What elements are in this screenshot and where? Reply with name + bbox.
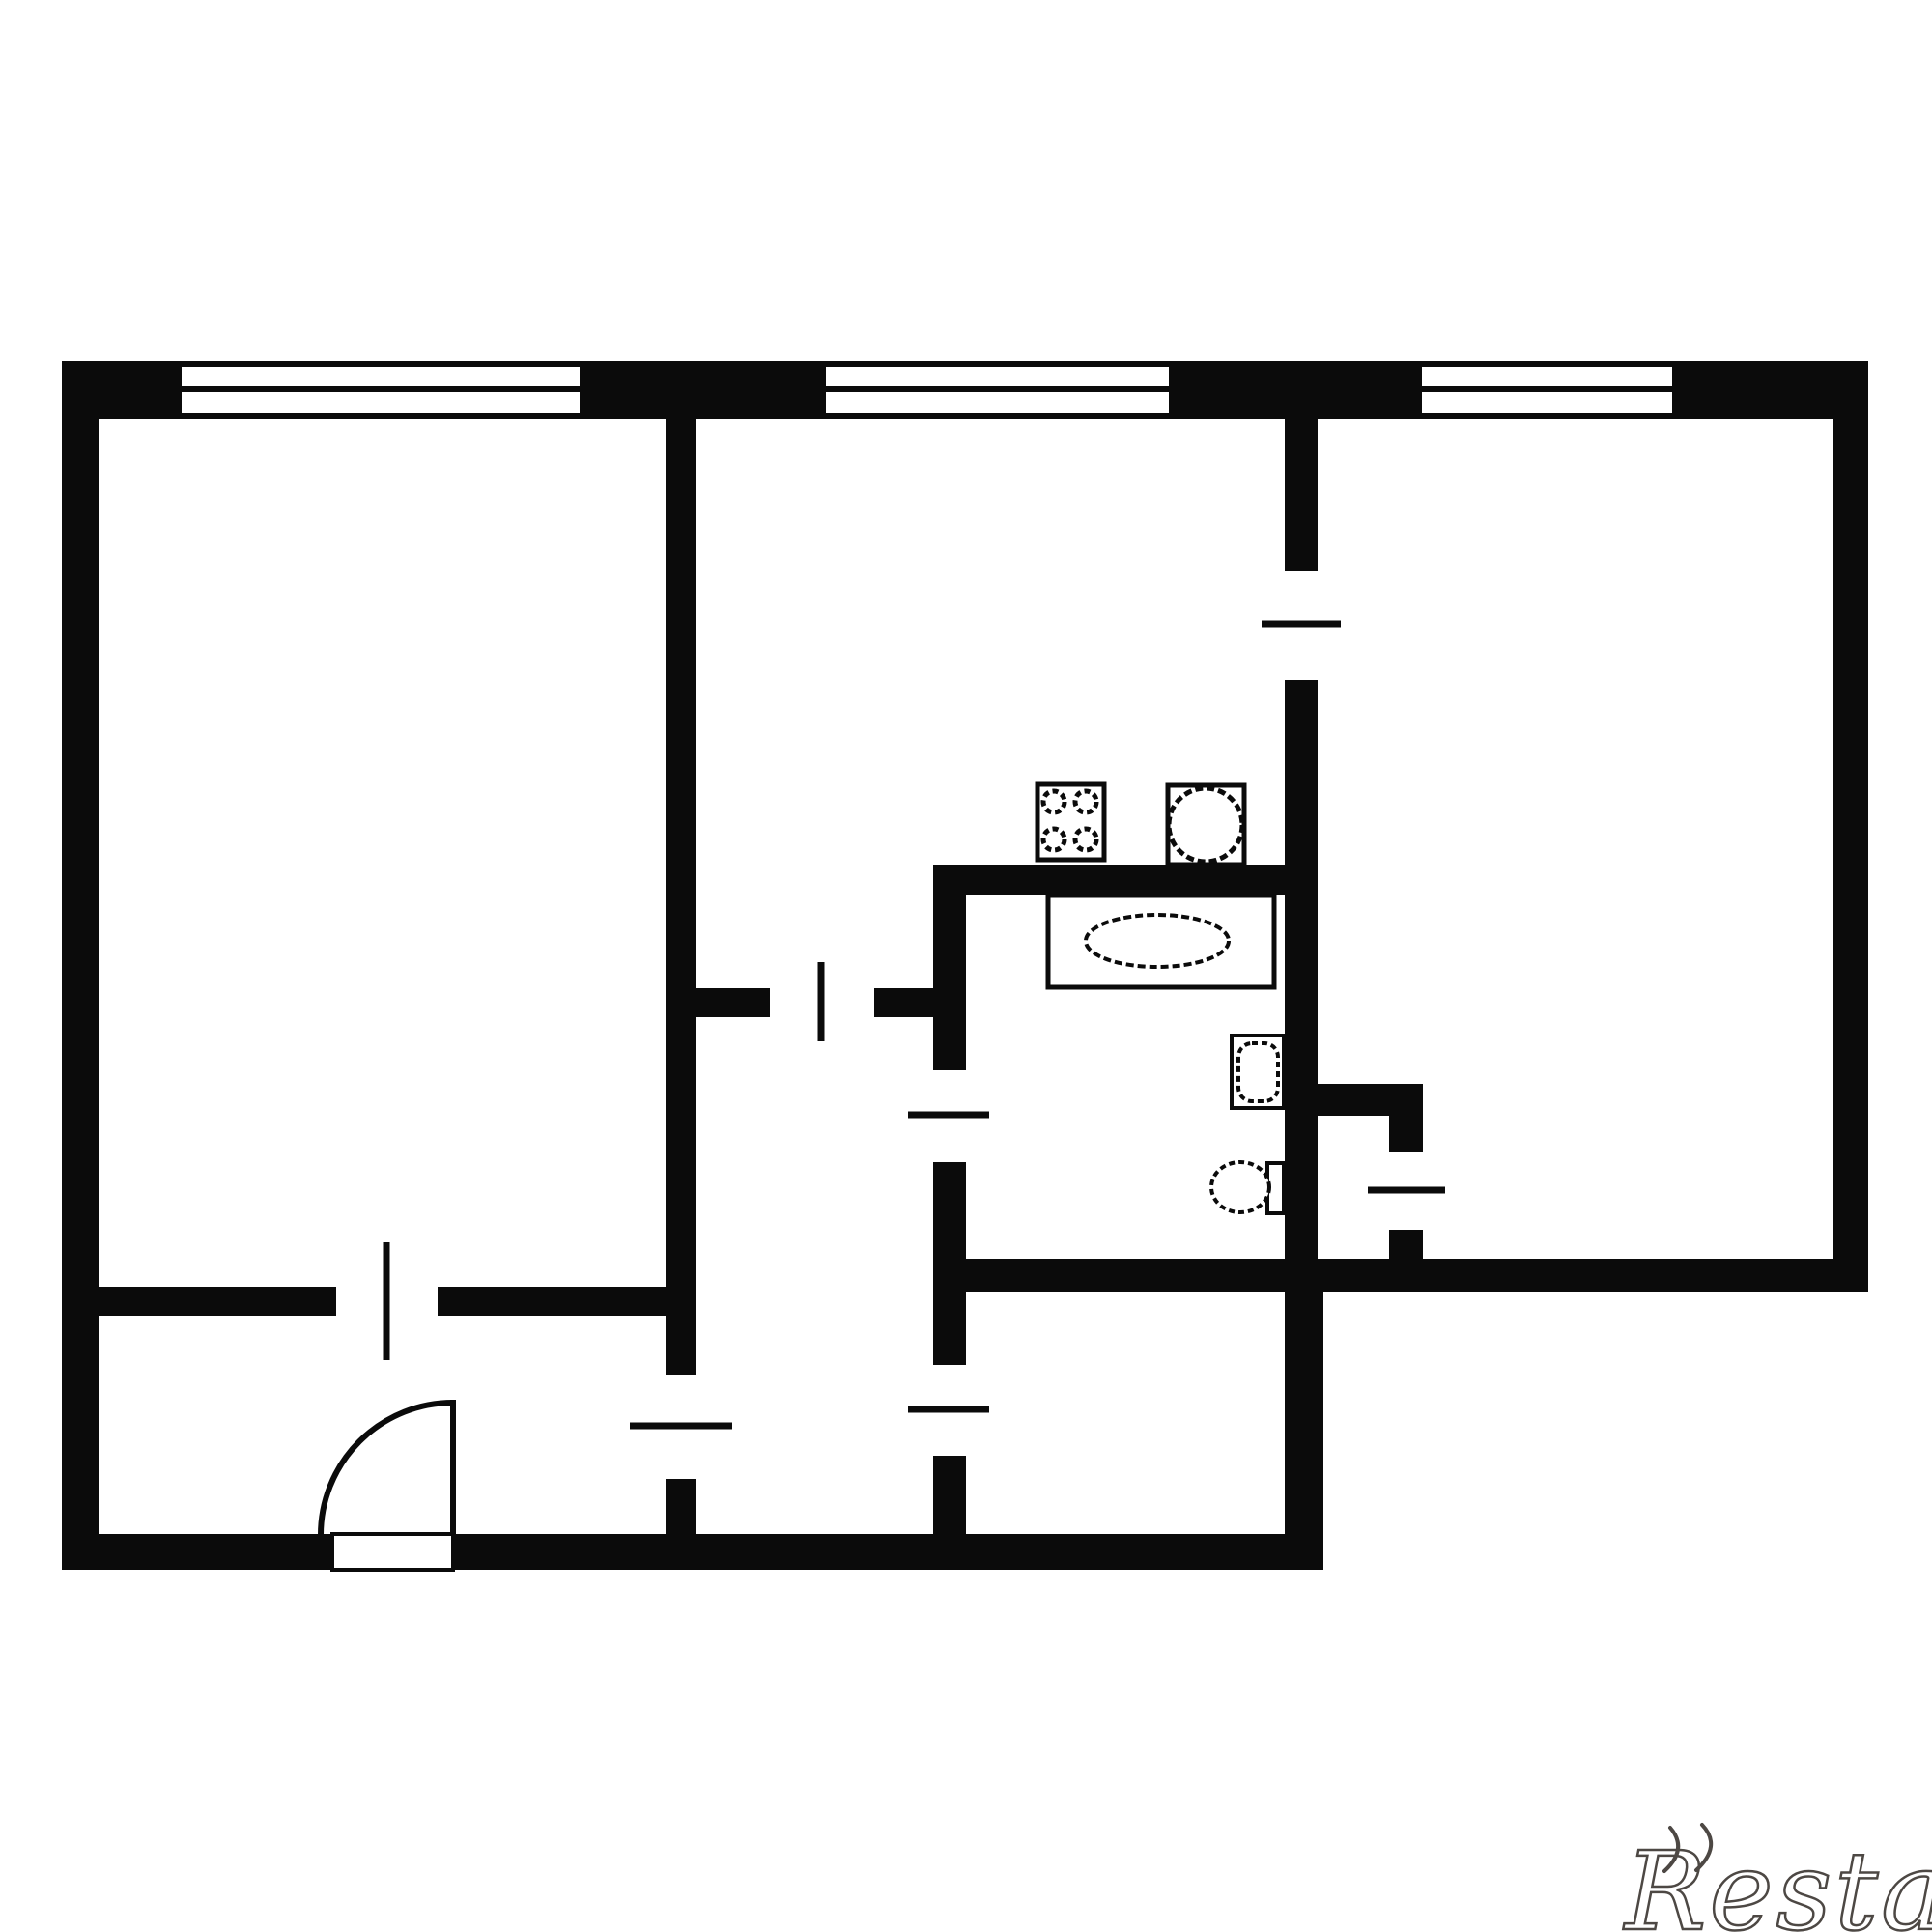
fixtures-layer — [1037, 784, 1284, 1213]
wall-b-upper — [1285, 419, 1318, 571]
bottom-wall-seg-left — [62, 1534, 332, 1570]
floor-plan: Restate — [0, 0, 1932, 1932]
right-room-window — [1422, 361, 1672, 419]
south-band-wall — [933, 1259, 1833, 1292]
right-room-window-inner-line — [1422, 413, 1672, 419]
wall-a-lower — [666, 1479, 696, 1570]
room1-south-wall-left — [99, 1287, 336, 1316]
room1-south-wall-right — [438, 1287, 666, 1316]
kitchen-window-mid-line — [826, 386, 1169, 392]
stove — [1037, 784, 1104, 860]
watermark-layer: Restate — [1623, 1825, 1932, 1932]
top-wall-seg-mid-left — [580, 361, 826, 419]
washbasin — [1232, 1036, 1284, 1108]
room1-window-outer-line — [182, 361, 580, 367]
toilet-bowl — [1211, 1162, 1269, 1212]
kitchen-window-inner-line — [826, 413, 1169, 419]
kitchen-south-wall-right — [874, 988, 933, 1017]
right-outer-wall — [1833, 361, 1868, 1292]
wall-d-upper — [933, 865, 966, 1070]
toilet — [1211, 1162, 1284, 1213]
watermark-text: Restate — [1623, 1830, 1932, 1932]
bottom-wall-seg-right — [453, 1534, 1323, 1570]
kitchen-window-outer-line — [826, 361, 1169, 367]
right-room-window-outer-line — [1422, 361, 1672, 367]
closet-right-wall-upper — [1389, 1116, 1423, 1152]
wall-a-upper — [666, 419, 696, 1375]
windows-layer — [182, 361, 1672, 419]
kitchen-window — [826, 361, 1169, 419]
bathtub-body — [1048, 895, 1274, 987]
walls-layer — [62, 361, 1868, 1570]
right-room-window-mid-line — [1422, 386, 1672, 392]
wall-d-lower — [933, 1456, 966, 1570]
kitchen-sink — [1168, 785, 1244, 865]
lower-right-wall — [1285, 1292, 1323, 1570]
wall-d-middle — [933, 1162, 966, 1365]
entrance-door-opening — [332, 1534, 453, 1570]
wall-b-lower — [1285, 680, 1318, 1292]
entrance-door-swing-arc — [321, 1403, 453, 1535]
bathtub — [1048, 895, 1274, 987]
closet-right-wall-lower — [1389, 1230, 1423, 1259]
top-wall-seg-mid-right — [1169, 361, 1422, 419]
floorplan-page: Restate — [0, 0, 1932, 1932]
closet-top-wall — [1318, 1084, 1423, 1116]
wall-c-kitchen-bath — [933, 865, 1317, 895]
room1-window-inner-line — [182, 413, 580, 419]
room1-window-mid-line — [182, 386, 580, 392]
kitchen-south-wall-left — [696, 988, 770, 1017]
room1-window — [182, 361, 580, 419]
left-outer-wall — [62, 361, 99, 1570]
